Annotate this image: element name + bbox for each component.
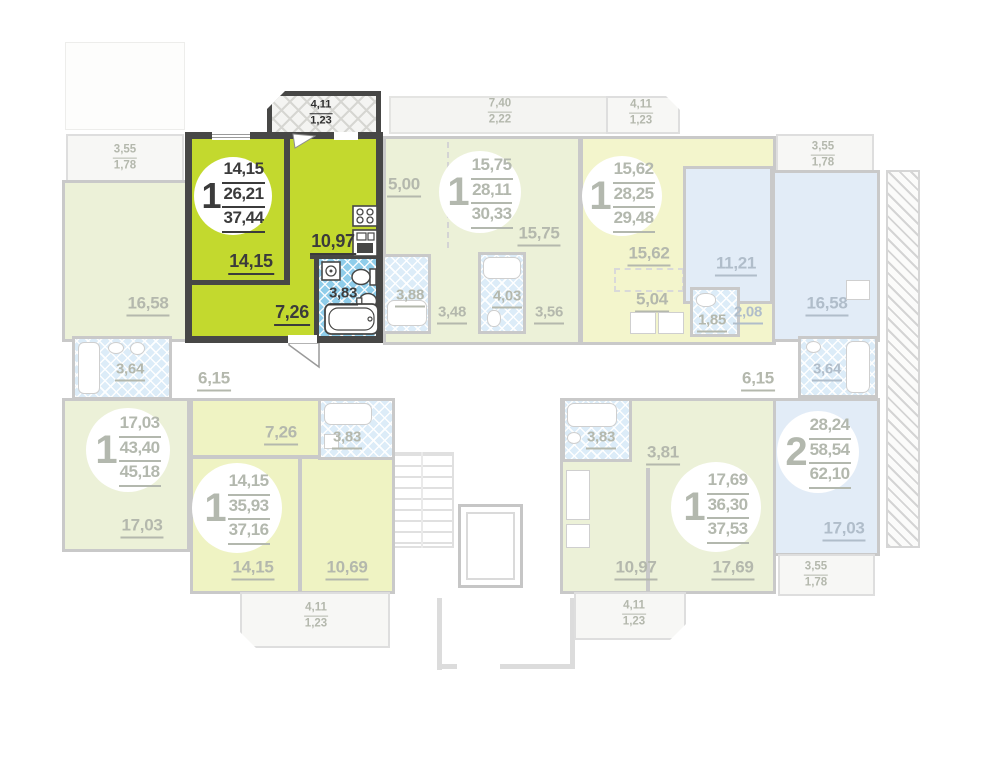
area-label-tr-kitchen: 5,04 — [635, 291, 669, 308]
wall — [284, 139, 290, 285]
entry-door-leaf-icon — [287, 343, 321, 369]
wall — [437, 598, 442, 670]
area-label-tm-room: 15,75 — [517, 225, 560, 242]
washer-icon — [321, 261, 341, 281]
kitchen-niche-dashed — [614, 268, 684, 292]
balcony-label-highlighted: 4,111,23 — [310, 98, 333, 128]
area-label-left-living: 16,58 — [126, 295, 169, 312]
area-label-hl-living: 14,15 — [228, 252, 274, 270]
balcony-top-middle — [389, 96, 637, 134]
elevator-shaft — [458, 504, 523, 588]
area-label-tr-room: 15,62 — [627, 245, 670, 262]
balcony-label-right-bottom: 3,551,78 — [804, 560, 828, 591]
stove-icon — [352, 205, 378, 227]
area-label-br-bath: 3,83 — [586, 430, 616, 445]
apartment-rooms-count: 1 — [204, 490, 224, 526]
area-label-tm-bath-a: 3,88 — [395, 288, 425, 303]
stove-icon — [630, 312, 656, 334]
apartment-rooms-count: 1 — [447, 174, 467, 210]
wall — [191, 280, 290, 285]
wall — [193, 455, 318, 459]
window — [212, 132, 250, 140]
balcony-label-right-top: 3,551,78 — [811, 140, 835, 171]
kitchen-sink-icon — [352, 229, 378, 257]
apartment-badge-bottom-right[interactable]: 1 17,69 36,30 37,53 — [671, 462, 761, 552]
toilet-icon — [130, 342, 145, 355]
stairs-center-line — [421, 452, 423, 548]
apartment-rooms-count: 1 — [201, 180, 219, 212]
balcony-label-bottom-middle: 4,111,23 — [304, 601, 328, 632]
floor-plan: 3,551,78 16,58 3,64 1 17,03 43,40 45,18 … — [0, 0, 987, 768]
sink-icon — [567, 432, 581, 444]
stove-icon — [846, 280, 870, 300]
sink-icon — [806, 341, 821, 353]
kitchen-sink-icon — [658, 312, 684, 334]
area-label-left-bath: 3,64 — [115, 362, 145, 377]
area-label-right-living: 16,58 — [805, 295, 848, 312]
balcony-door — [334, 132, 358, 140]
area-label-tr-hall: 2,08 — [733, 305, 763, 320]
hatched-wall-section — [886, 170, 920, 548]
area-label-bottom-left-room: 17,03 — [120, 517, 163, 534]
area-label-two-room: 17,03 — [822, 520, 865, 537]
area-label-corridor-left: 6,15 — [197, 370, 231, 387]
area-label-hl-hall: 7,26 — [274, 303, 310, 321]
toilet-icon — [696, 293, 716, 307]
toilet-icon — [487, 310, 501, 327]
area-label-bm-kitchen: 10,69 — [325, 559, 368, 576]
apartment-badge-bottom-left[interactable]: 1 17,03 43,40 45,18 — [86, 408, 170, 492]
area-label-br-room: 17,69 — [711, 559, 754, 576]
area-label-bm-bath: 3,83 — [332, 430, 362, 445]
bathtub-icon — [324, 303, 379, 335]
bathtub-icon — [483, 257, 521, 279]
adjacent-structure — [65, 42, 185, 130]
wall — [437, 664, 457, 669]
area-label-tm-kitchen: 5,00 — [387, 176, 421, 193]
balcony-label-top-right: 4,111,23 — [629, 98, 653, 129]
area-label-right-bath: 3,64 — [812, 362, 842, 377]
apartment-badge-top-middle[interactable]: 1 15,75 28,11 30,33 — [439, 151, 521, 233]
area-label-bm-room: 14,15 — [231, 559, 274, 576]
area-label-tr-wc: 1,85 — [697, 313, 727, 328]
area-label-tm-hall-b: 3,56 — [534, 305, 564, 320]
apartment-rooms-count: 1 — [95, 432, 115, 468]
balcony-label-top-left: 3,551,78 — [113, 143, 137, 174]
area-label-corridor-right: 6,15 — [741, 370, 775, 387]
apartment-badge-right-two-room[interactable]: 2 28,24 58,54 62,10 — [777, 411, 859, 493]
apartment-badge-highlighted[interactable]: 1 14,15 26,21 37,44 — [194, 157, 272, 235]
balcony-label-bottom-right: 4,111,23 — [622, 599, 646, 630]
wall — [500, 664, 575, 669]
apartment-badge-top-right[interactable]: 1 15,62 28,25 29,48 — [582, 156, 662, 236]
balcony-label-top-middle: 7,402,22 — [488, 97, 512, 128]
room-tr-bedroom — [683, 166, 773, 304]
apartment-rooms-count: 2 — [785, 434, 805, 470]
apartment-rooms-count: 1 — [589, 178, 609, 214]
bathtub-icon — [846, 341, 870, 393]
area-label-bm-hall: 7,26 — [264, 424, 298, 441]
area-label-tm-bath-b: 4,03 — [492, 289, 522, 304]
area-label-br-kitchen: 10,97 — [614, 559, 657, 576]
bathtub-icon — [567, 403, 617, 427]
area-label-hl-bath: 3,83 — [328, 286, 358, 301]
room-left-living — [62, 180, 189, 342]
area-label-br-hall: 3,81 — [646, 444, 680, 461]
area-label-tr-bedroom: 11,21 — [715, 255, 757, 272]
bathtub-icon — [324, 403, 372, 425]
wall — [298, 458, 302, 594]
apartment-badge-bottom-middle[interactable]: 1 14,15 35,93 37,16 — [192, 463, 282, 553]
area-label-hl-kitchen: 10,97 — [310, 232, 356, 250]
bathtub-icon — [78, 342, 100, 394]
balcony-door-leaf-icon — [292, 133, 316, 150]
area-label-tm-hall-a: 3,48 — [437, 305, 467, 320]
stove-icon — [566, 524, 590, 548]
kitchen-cabinet-icon — [566, 470, 590, 520]
apartment-rooms-count: 1 — [683, 489, 703, 525]
sink-icon — [108, 342, 124, 354]
